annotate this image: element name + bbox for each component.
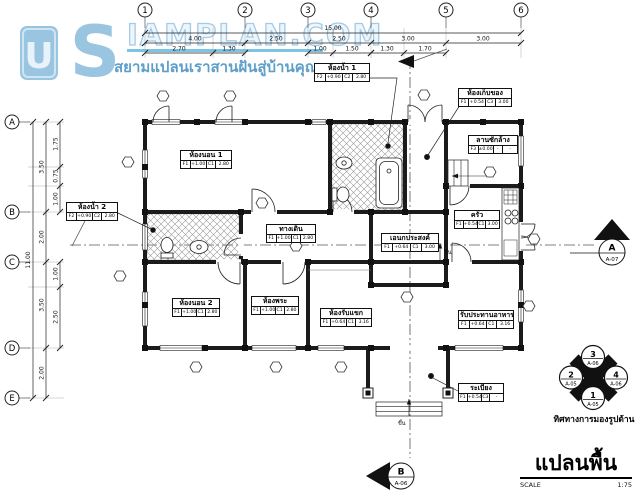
svg-text:A-07: A-07	[606, 257, 619, 263]
room-name: ครัว	[454, 210, 500, 221]
post	[443, 209, 449, 215]
svg-text:1: 1	[590, 391, 596, 400]
sheet-title: แปลนพื้น	[520, 450, 632, 476]
dimension-text: 11.00	[25, 251, 32, 268]
svg-text:A: A	[9, 118, 15, 128]
dimension-text: 3.50	[39, 298, 46, 312]
post	[142, 302, 148, 308]
post	[368, 282, 374, 288]
tag-hexagon-icon	[157, 91, 169, 101]
tag-hexagon-icon	[528, 234, 540, 244]
svg-text:D: D	[9, 344, 16, 354]
tag-hexagon-icon	[401, 292, 413, 302]
room-name: ห้องนอน 2	[172, 298, 220, 309]
room-name: ระเบียง	[458, 383, 504, 394]
post	[327, 209, 333, 215]
post	[368, 345, 374, 351]
dimension-text: 3.00	[401, 36, 415, 43]
room-label: ห้องน้ำ 2 F2+0.90C22.80	[66, 202, 118, 221]
tag-hexagon-icon	[224, 91, 236, 101]
svg-text:5: 5	[443, 6, 448, 16]
post	[142, 259, 148, 265]
post	[518, 119, 524, 125]
dimension-text: 1.30	[222, 46, 236, 53]
room-label: ทางเดิน F1+1.00C12.80	[266, 224, 316, 243]
post	[242, 345, 248, 351]
room-label: ห้องน้ำ 1 F2+0.90C22.80	[314, 63, 370, 82]
post	[305, 345, 311, 351]
dimension-text: 1.70	[418, 46, 432, 53]
svg-text:B: B	[9, 208, 15, 218]
svg-text:B: B	[398, 468, 405, 478]
section-marker-a: A A-07	[570, 219, 630, 265]
dimension-text: 2.00	[39, 230, 46, 244]
tag-hexagon-icon	[335, 362, 347, 372]
dimension-text: 1.00	[313, 46, 327, 53]
room-values: F1+1.00C12.80	[172, 309, 220, 317]
room-values: F3±0.00--	[468, 146, 518, 154]
post	[443, 259, 449, 265]
svg-text:6: 6	[518, 6, 523, 16]
tag-hexagon-icon	[270, 362, 282, 372]
room-name: ห้องเก็บของ	[458, 88, 512, 99]
svg-text:A-06: A-06	[587, 361, 598, 367]
post	[142, 345, 148, 351]
svg-text:A-06: A-06	[395, 481, 408, 487]
room-values: F1+0.54C33.00	[458, 99, 512, 107]
room-name: ห้องรับแขก	[320, 308, 372, 319]
post	[194, 119, 200, 125]
post	[402, 119, 408, 125]
post	[142, 209, 148, 215]
room-values: F1+1.00C12.80	[180, 161, 232, 169]
up-note-porch: ขึ้น	[398, 420, 406, 428]
svg-text:A: A	[609, 244, 616, 254]
svg-text:4: 4	[368, 6, 373, 16]
tag-hexagon-icon	[484, 167, 496, 177]
svg-text:A-06: A-06	[610, 382, 621, 388]
room-name: ห้องน้ำ 1	[314, 63, 370, 74]
dimension-text: 2.50	[269, 36, 283, 43]
svg-text:C: C	[9, 258, 15, 268]
room-label: ระเบียง F1+0.54C3-	[458, 383, 504, 402]
svg-text:A-05: A-05	[565, 382, 576, 388]
room-name: เอนกประสงค์	[381, 233, 439, 244]
dimension-text: 15.00	[324, 25, 341, 32]
room-values: F1+0.64C13.16	[320, 319, 372, 327]
scale-value: 1:75	[617, 481, 632, 489]
dimension-text: 2.50	[53, 310, 60, 324]
post	[142, 119, 148, 125]
room-label: ครัว F1+0.54C13.00	[454, 210, 500, 229]
tag-hexagon-icon	[523, 301, 535, 311]
dimension-text: 4.00	[188, 36, 202, 43]
post	[443, 345, 449, 351]
post	[142, 164, 148, 170]
compass-caption: ทิศทางการมองรูปด้าน	[543, 412, 640, 426]
svg-text:3: 3	[590, 350, 596, 359]
room-label: รับประทานอาหาร F1+0.64C13.16	[458, 310, 514, 329]
dimension-text: 1.30	[380, 46, 394, 53]
tag-hexagon-icon	[256, 198, 268, 208]
scale-label: SCALE	[520, 481, 541, 489]
post	[518, 345, 524, 351]
room-label: ห้องเก็บของ F1+0.54C33.00	[458, 88, 512, 107]
room-name: ทางเดิน	[266, 224, 316, 235]
post	[402, 209, 408, 215]
post	[305, 259, 311, 265]
room-name: ห้องนอน 1	[180, 150, 232, 161]
post	[518, 302, 524, 308]
post	[480, 119, 486, 125]
svg-text:1: 1	[142, 6, 147, 16]
floor-plan-page: U S IAMPLAN.COM สยามแปลนเราสานฝันสู่บ้าน…	[0, 0, 640, 498]
post	[238, 209, 244, 215]
room-values: F1+1.00C12.80	[266, 235, 316, 243]
room-values: F1+1.00C12.80	[251, 307, 299, 315]
tag-hexagon-icon	[114, 271, 126, 281]
room-label: เอนกประสงค์ F1+0.64C13.00	[381, 233, 439, 252]
svg-text:E: E	[9, 394, 14, 404]
dimension-text: 1.75	[53, 137, 60, 151]
dimension-text: 3.50	[39, 160, 46, 174]
room-values: F2+0.90C22.80	[66, 213, 118, 221]
post	[202, 345, 208, 351]
room-name: ลานซักล้าง	[468, 135, 518, 146]
room-name: ห้องน้ำ 2	[66, 202, 118, 213]
dimension-text: 1.00	[53, 267, 60, 281]
svg-text:3: 3	[305, 6, 310, 16]
tag-hexagon-icon	[190, 362, 202, 372]
tag-hexagon-icon	[418, 90, 430, 100]
post	[368, 209, 374, 215]
room-label: ห้องนอน 2 F1+1.00C12.80	[172, 298, 220, 317]
dimension-text: 0.75	[53, 169, 60, 183]
svg-text:4: 4	[613, 371, 619, 380]
post	[327, 119, 333, 125]
up-note-living: ขึ้น	[444, 249, 452, 257]
post	[368, 259, 374, 265]
dimension-text: 2.70	[172, 46, 186, 53]
dimension-text: 3.00	[476, 36, 490, 43]
title-block: แปลนพื้น SCALE 1:75	[520, 450, 632, 489]
dimension-text: 1.50	[345, 46, 359, 53]
dimension-text: 2.00	[39, 366, 46, 380]
room-name: รับประทานอาหาร	[458, 310, 514, 321]
elevation-compass: 3A-062A-054A-061A-05	[560, 346, 628, 410]
room-label: ห้องพระ F1+1.00C12.80	[251, 296, 299, 315]
post	[305, 119, 311, 125]
post	[242, 259, 248, 265]
tag-hexagon-icon	[122, 157, 134, 167]
svg-text:A-05: A-05	[587, 402, 598, 408]
post	[242, 119, 248, 125]
room-values: F2+0.90C22.80	[314, 74, 370, 82]
post	[443, 282, 449, 288]
room-values: F1+0.64C13.00	[381, 244, 439, 252]
room-values: F1+0.54C3-	[458, 394, 504, 402]
room-values: F1+0.64C13.16	[458, 321, 514, 329]
title-rule	[520, 477, 632, 479]
dimension-text: 2.50	[332, 36, 346, 43]
room-label: ลานซักล้าง F3±0.00--	[468, 135, 518, 154]
room-label: ห้องนอน 1 F1+1.00C12.80	[180, 150, 232, 169]
fixtures	[161, 157, 519, 416]
dimension-text: 1.00	[53, 192, 60, 206]
room-label: ห้องรับแขก F1+0.64C13.16	[320, 308, 372, 327]
room-values: F1+0.54C13.00	[454, 221, 500, 229]
svg-text:2: 2	[242, 6, 247, 16]
svg-text:2: 2	[568, 371, 574, 380]
room-name: ห้องพระ	[251, 296, 299, 307]
post	[368, 119, 374, 125]
